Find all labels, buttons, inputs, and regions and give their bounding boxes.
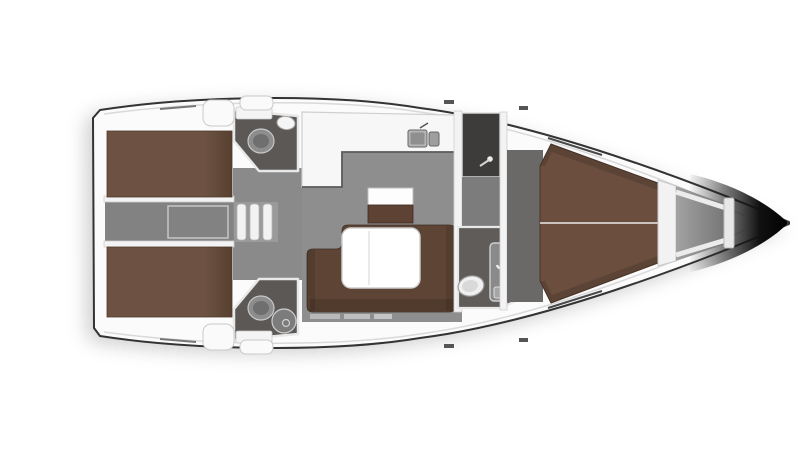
- deck-fitting-bottom-2: [519, 338, 528, 342]
- deck-fitting-bottom-1: [444, 344, 454, 348]
- deck-pod-top-2: [240, 96, 273, 110]
- floor-plan-svg: [0, 0, 800, 450]
- aft-cabin-starboard-bed: [107, 247, 232, 317]
- chart-cabinet-front: [368, 205, 413, 223]
- deck-fitting-top-2: [519, 106, 528, 110]
- deck-pod-bottom-1: [203, 324, 234, 350]
- deck-pod-bottom-2: [240, 340, 273, 354]
- aft-cabin-port-bed: [107, 131, 232, 197]
- deck-pod-top-1: [203, 100, 234, 126]
- bow-bulkhead: [658, 180, 676, 266]
- vestibule-floor: [462, 177, 500, 227]
- yacht-floor-plan: [0, 0, 800, 450]
- aft-head-starboard-toilet-bowl: [253, 301, 269, 315]
- bench-strip-2: [344, 314, 370, 319]
- sofa-backrest-bottom: [310, 299, 453, 311]
- wet-locker-floor: [462, 113, 500, 177]
- forward-cabin-entry-floor: [507, 150, 543, 302]
- sofa-armrest-left: [307, 250, 315, 311]
- aft-head-port-toilet-bowl: [253, 134, 269, 148]
- table-top: [342, 228, 420, 288]
- galley-sink-left-basin: [411, 133, 425, 145]
- forward-cabin-bulkhead: [500, 112, 507, 310]
- chart-cabinet: [368, 188, 413, 223]
- locker-end-bar: [724, 198, 734, 248]
- step-1: [237, 204, 246, 240]
- step-3: [263, 204, 272, 240]
- salon-table: [342, 228, 420, 288]
- engine-corridor-floor: [105, 201, 235, 243]
- corridor-wall-bottom: [104, 241, 234, 247]
- chart-cabinet-top: [368, 188, 413, 205]
- bench-strip-1: [310, 314, 340, 319]
- bench-strip-3: [374, 314, 392, 319]
- galley-sink-right: [429, 132, 439, 146]
- aft-head-starboard-shower-pan: [272, 309, 296, 333]
- step-2: [250, 204, 259, 240]
- wet-locker: [462, 113, 500, 177]
- deck-fitting-top-1: [444, 100, 454, 104]
